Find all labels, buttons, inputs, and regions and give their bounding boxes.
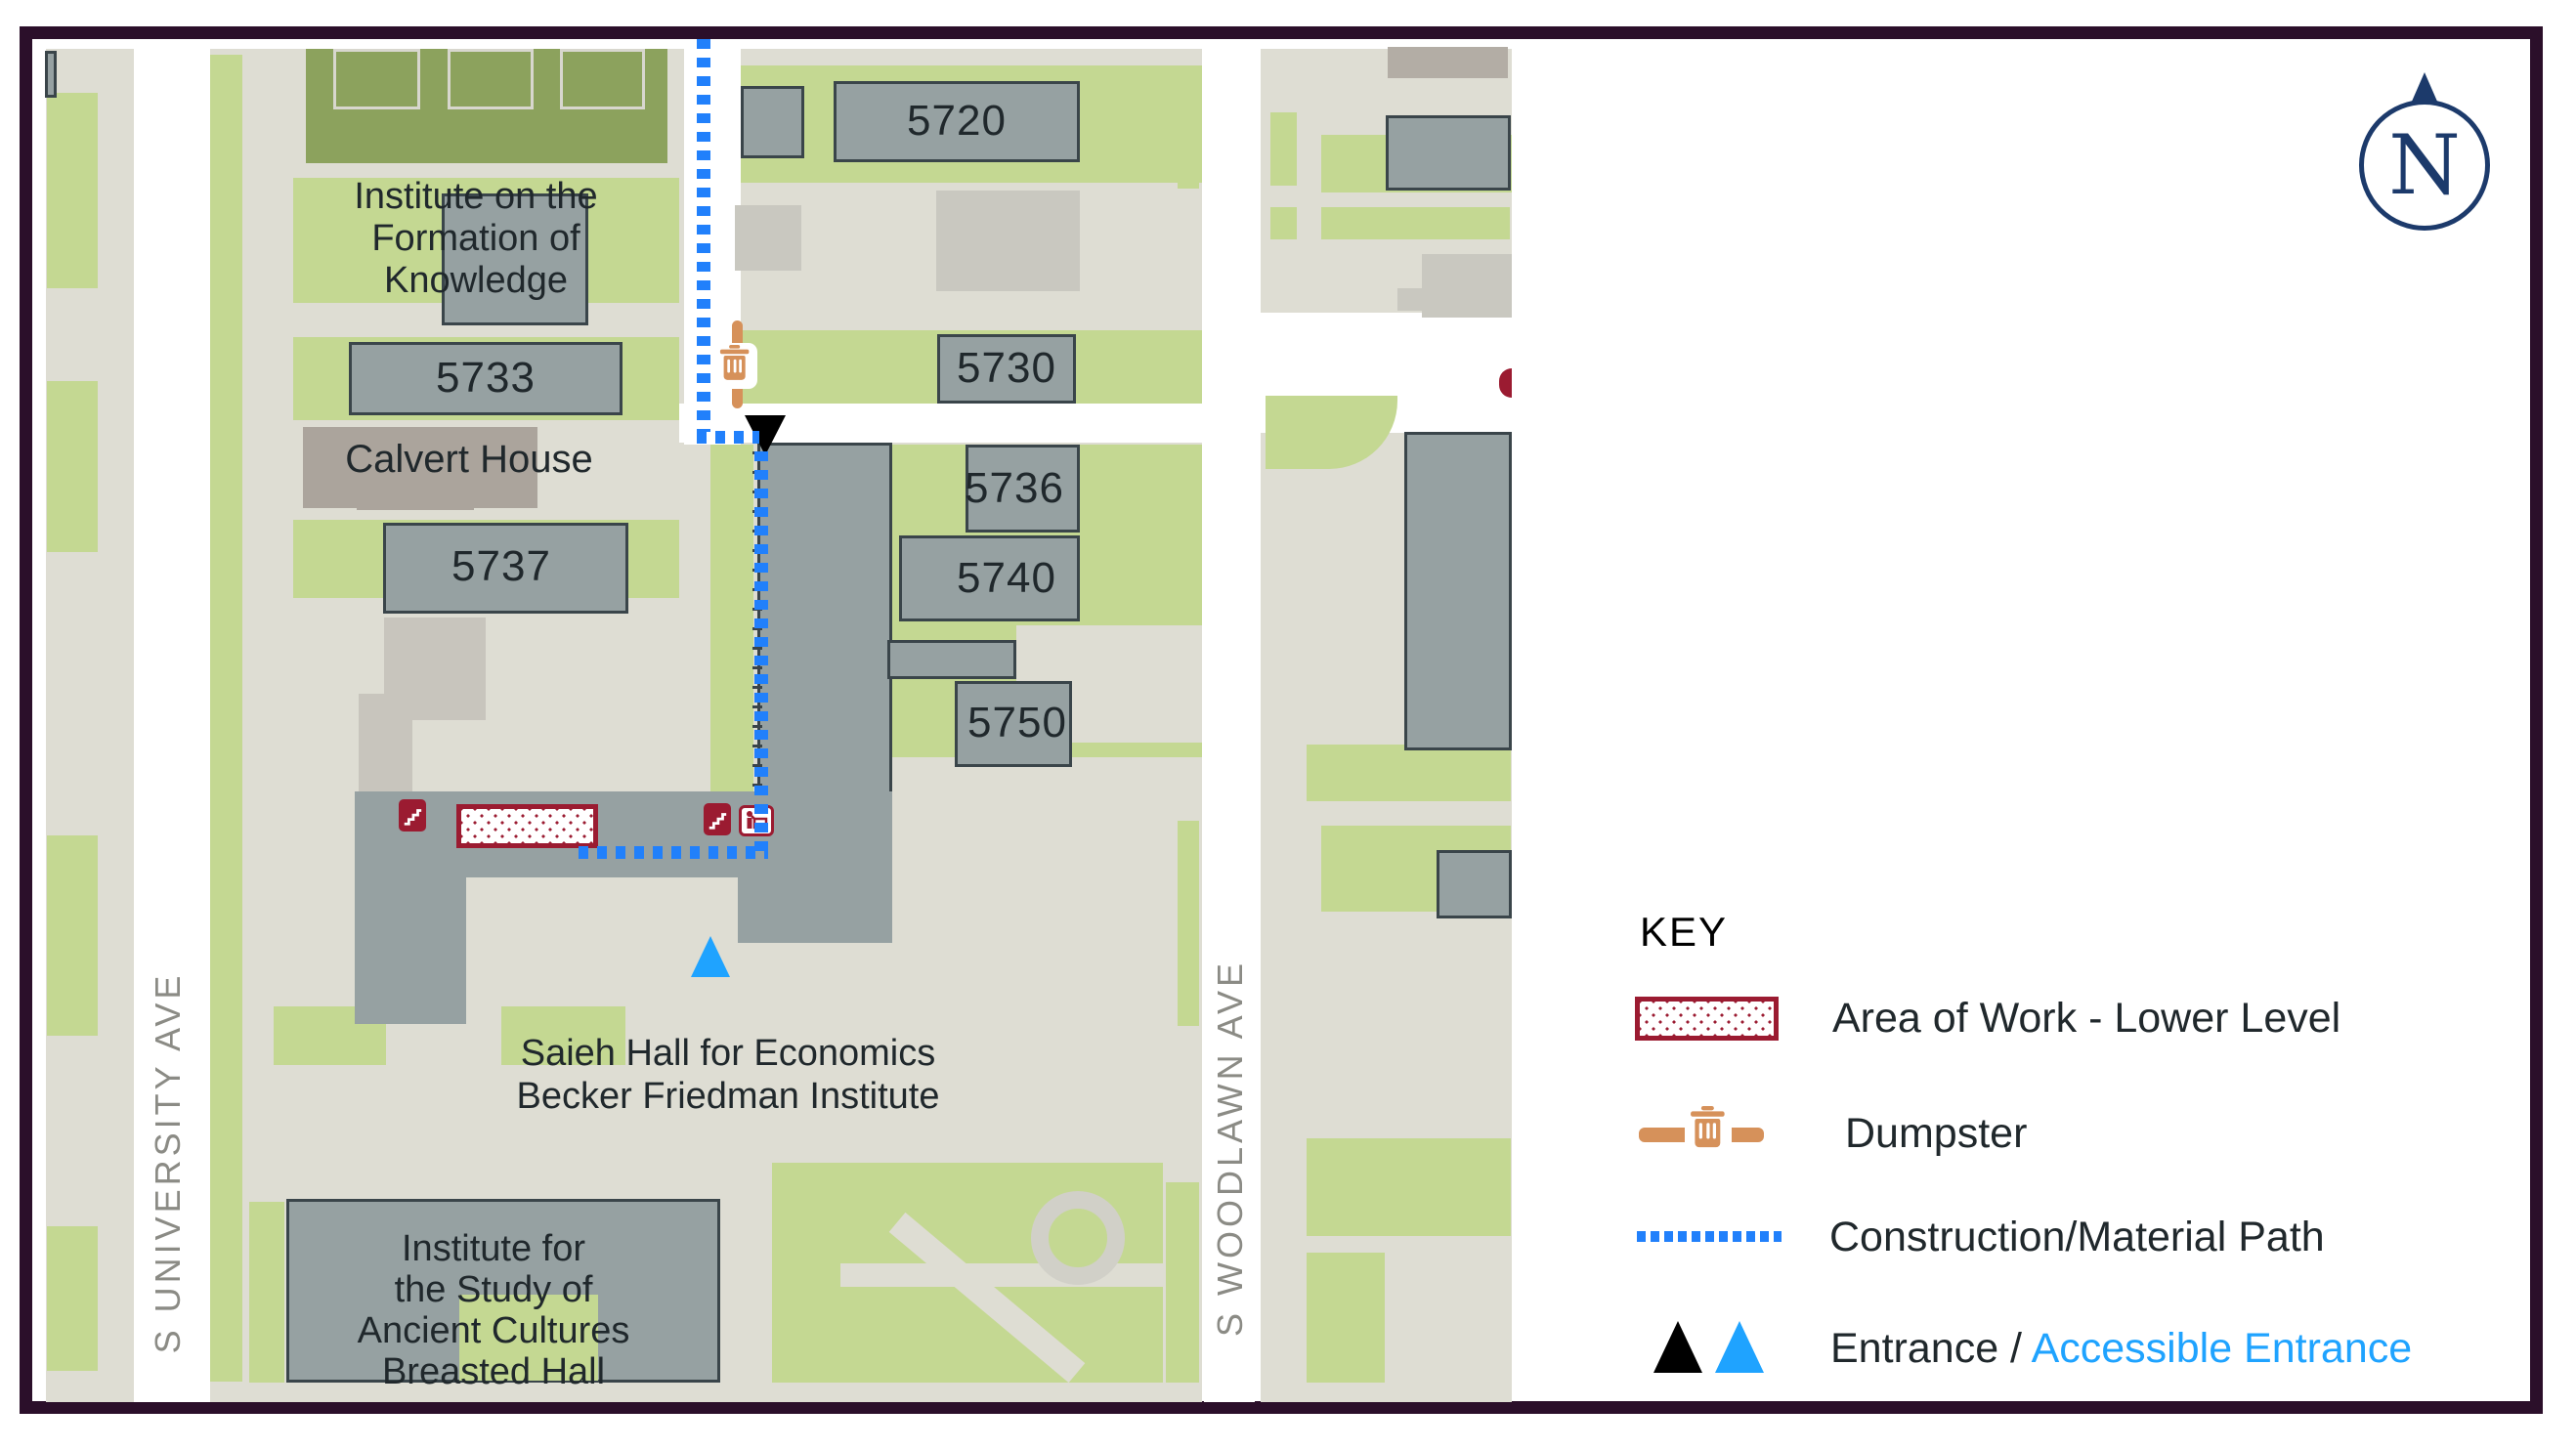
background-building <box>936 191 1080 291</box>
calvert-house-label: Calvert House <box>244 438 694 481</box>
ifk-label-line3: Knowledge <box>251 259 701 302</box>
construction-path-segment <box>754 451 768 852</box>
key-entrance-triangle-icon <box>1653 1321 1702 1373</box>
ifk-label-line2: Formation of <box>251 217 701 260</box>
lawn <box>1307 1138 1511 1236</box>
parkway-strip <box>210 55 242 1382</box>
lawn <box>1270 112 1297 186</box>
isac-label-line3: Ancient Cultures <box>269 1309 718 1352</box>
key-title: KEY <box>1640 909 1728 956</box>
background-building-tower <box>359 694 412 793</box>
saieh-hall-label-line1: Saieh Hall for Economics <box>474 1032 982 1075</box>
isac-label-line1: Institute for <box>269 1227 718 1270</box>
tennis-court <box>448 49 534 109</box>
calvert-house-annex <box>357 486 474 510</box>
small-structure <box>45 51 57 98</box>
building-5730-label: 5730 <box>928 345 1085 392</box>
garden-circle <box>1031 1191 1125 1285</box>
compass-letter: N <box>2388 117 2461 213</box>
building-5750-label: 5750 <box>939 700 1095 746</box>
key-entrance-label: Entrance / Accessible Entrance <box>1830 1327 2412 1371</box>
lawn <box>1178 112 1199 189</box>
building-5736-label: 5736 <box>936 465 1093 512</box>
lawn <box>1307 745 1511 801</box>
stairs-icon <box>704 803 731 835</box>
isac-label-line2: the Study of <box>269 1268 718 1311</box>
background-building <box>1397 288 1422 311</box>
ifk-label-line1: Institute on the <box>251 175 701 218</box>
area-of-work-zone <box>456 804 598 848</box>
construction-path-segment <box>697 431 759 444</box>
background-building <box>1422 254 1512 318</box>
key-entrance-text: Entrance / <box>1830 1325 2032 1372</box>
campus-construction-map: S UNIVERSITY AVE S WOODLAWN AVE Institut… <box>0 0 2576 1450</box>
key-area-of-work-swatch <box>1635 997 1779 1041</box>
key-construction-path-swatch <box>1637 1231 1782 1242</box>
lawn <box>1307 1253 1385 1383</box>
east-building <box>1404 432 1512 750</box>
east-building <box>1386 115 1511 191</box>
building-5720-label: 5720 <box>879 98 1035 145</box>
alley-lawn <box>710 445 753 850</box>
building-5740-label: 5740 <box>928 555 1085 602</box>
isac-label-line4: Breasted Hall <box>269 1350 718 1393</box>
lawn <box>1321 207 1510 239</box>
lawn <box>1178 821 1199 1026</box>
building-5737-label: 5737 <box>423 543 580 590</box>
street-label-woodlawn: S WOODLAWN AVE <box>1211 933 1250 1363</box>
lawn <box>1178 1182 1199 1383</box>
key-dumpster-icon <box>1690 1106 1726 1147</box>
building-5733-label: 5733 <box>408 355 564 402</box>
street-label-university: S UNIVERSITY AVE <box>149 948 188 1378</box>
building-annex-arm <box>887 640 1016 679</box>
tennis-court <box>333 49 420 109</box>
north-compass-icon: N <box>2359 100 2490 231</box>
saieh-hall-label-line2: Becker Friedman Institute <box>474 1075 982 1118</box>
east-building <box>1437 850 1512 918</box>
construction-path-segment <box>579 846 768 859</box>
stairs-icon <box>399 799 426 832</box>
lawn <box>47 835 98 1036</box>
key-area-of-work-label: Area of Work - Lower Level <box>1832 997 2340 1041</box>
lawn <box>47 93 98 288</box>
dumpster-icon <box>719 345 750 380</box>
accessible-entrance-triangle-icon <box>691 936 730 977</box>
key-accessible-entrance-text: Accessible Entrance <box>2032 1325 2413 1372</box>
lawn <box>47 1226 98 1371</box>
lawn <box>47 381 98 552</box>
key-construction-path-label: Construction/Material Path <box>1829 1215 2325 1259</box>
background-building <box>1388 47 1508 78</box>
background-building <box>735 205 801 271</box>
key-accessible-triangle-icon <box>1715 1321 1764 1373</box>
key-dumpster-label: Dumpster <box>1845 1112 2027 1156</box>
lawn <box>1270 207 1297 239</box>
building <box>741 86 804 158</box>
tennis-court <box>560 49 645 109</box>
